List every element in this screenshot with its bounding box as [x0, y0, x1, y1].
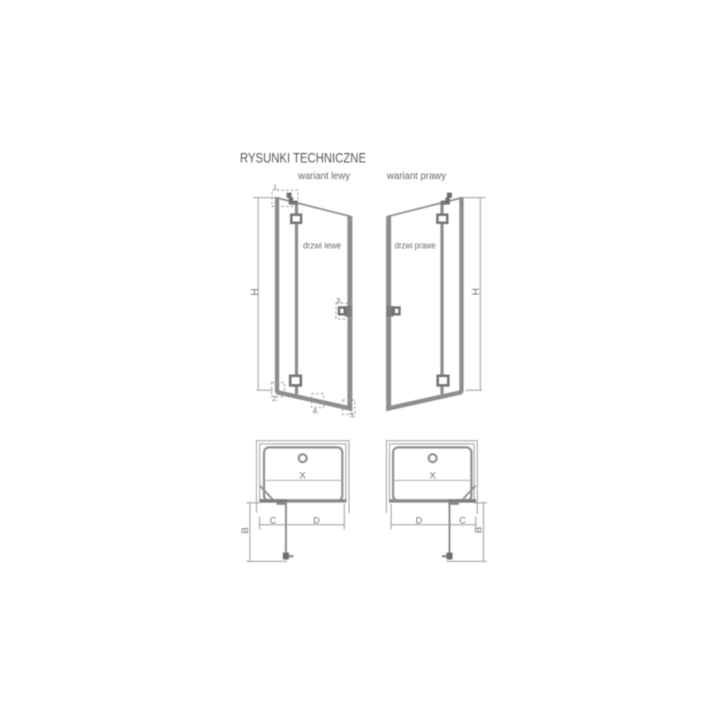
svg-text:3.: 3. [336, 296, 342, 305]
svg-text:C: C [270, 515, 277, 525]
svg-text:H: H [250, 288, 261, 295]
svg-text:X: X [429, 471, 436, 482]
svg-text:D: D [416, 515, 423, 525]
svg-text:H: H [471, 288, 482, 295]
svg-text:RYSUNKI TECHNICZNE: RYSUNKI TECHNICZNE [240, 149, 366, 165]
svg-text:B: B [240, 527, 251, 533]
svg-text:drzwi lewe: drzwi lewe [303, 241, 341, 251]
svg-text:B: B [474, 527, 485, 533]
svg-text:wariant lewy: wariant lewy [297, 170, 351, 182]
svg-text:X: X [299, 471, 306, 482]
svg-text:D: D [313, 515, 320, 525]
svg-text:2.: 2. [272, 394, 278, 403]
svg-text:1.: 1. [273, 182, 279, 191]
svg-text:C: C [459, 515, 466, 525]
svg-text:drzwi prawe: drzwi prawe [395, 241, 436, 251]
svg-text:4.: 4. [313, 406, 319, 415]
svg-text:5.: 5. [350, 411, 356, 420]
svg-text:wariant prawy: wariant prawy [386, 170, 447, 182]
